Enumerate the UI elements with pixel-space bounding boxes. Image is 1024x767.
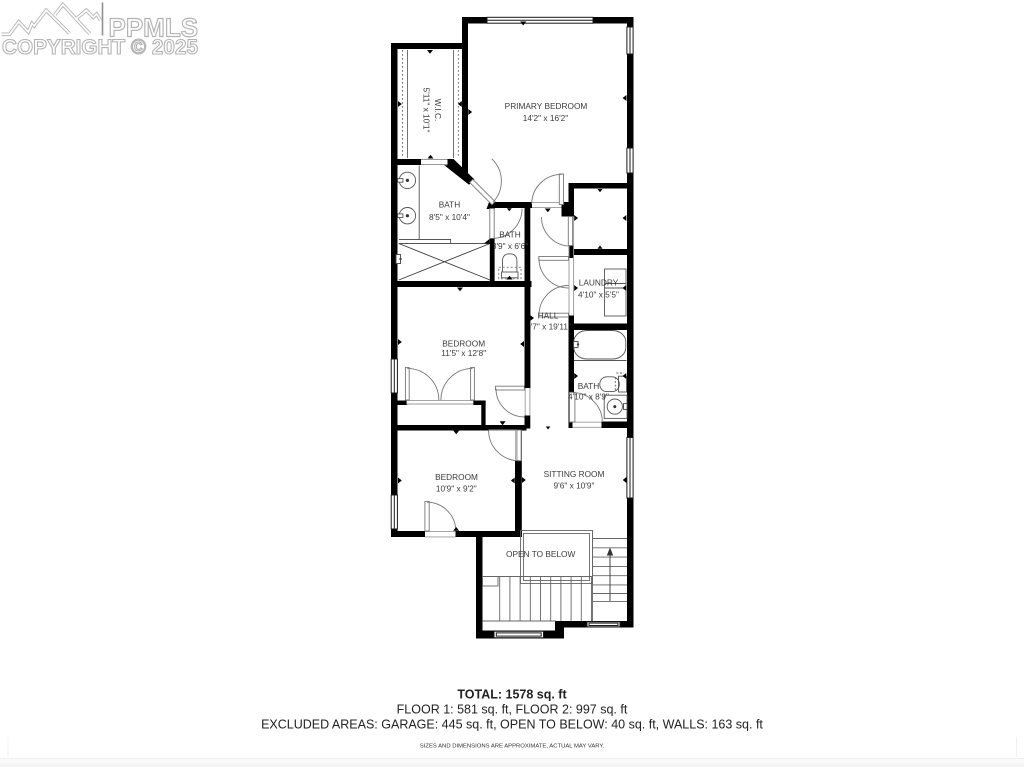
svg-text:3'7" x 19'11": 3'7" x 19'11" [526,322,571,332]
svg-text:4'10" x 5'5": 4'10" x 5'5" [578,290,619,300]
svg-text:OPEN TO BELOW: OPEN TO BELOW [506,549,575,559]
svg-text:14'2" x 16'2": 14'2" x 16'2" [523,113,569,123]
svg-text:HALL: HALL [538,311,559,321]
svg-text:BEDROOM: BEDROOM [442,339,485,349]
svg-text:BEDROOM: BEDROOM [435,472,478,482]
svg-text:BATH: BATH [578,381,600,391]
svg-text:5'11" x 10'1": 5'11" x 10'1" [422,88,432,133]
svg-text:SIZES AND DIMENSIONS ARE APPRO: SIZES AND DIMENSIONS ARE APPROXIMATE, AC… [420,744,605,750]
svg-text:TOTAL: 1578 sq. ft: TOTAL: 1578 sq. ft [457,688,567,702]
svg-text:EXCLUDED AREAS: GARAGE: 445 sq: EXCLUDED AREAS: GARAGE: 445 sq. ft, OPEN… [261,718,763,732]
svg-text:W.I.C.: W.I.C. [433,99,443,122]
svg-text:SITTING ROOM: SITTING ROOM [544,469,605,479]
svg-text:11'5" x 12'8": 11'5" x 12'8" [441,348,486,358]
svg-text:BATH: BATH [499,230,521,240]
svg-text:4'10" x 8'9": 4'10" x 8'9" [568,392,609,402]
svg-text:COPYRIGHT © 2025: COPYRIGHT © 2025 [2,36,198,59]
svg-text:8'5" x 10'4": 8'5" x 10'4" [429,212,470,222]
svg-text:9'6" x 10'9": 9'6" x 10'9" [554,480,595,490]
svg-text:LAUNDRY: LAUNDRY [579,278,619,288]
svg-text:PRIMARY BEDROOM: PRIMARY BEDROOM [505,101,588,111]
svg-text:BATH: BATH [439,200,461,210]
svg-text:FLOOR 1: 581 sq. ft, FLOOR 2:: FLOOR 1: 581 sq. ft, FLOOR 2: 997 sq. ft [397,703,628,717]
svg-text:3'9" x 6'6": 3'9" x 6'6" [492,241,528,251]
svg-text:10'9" x 9'2": 10'9" x 9'2" [436,483,477,493]
